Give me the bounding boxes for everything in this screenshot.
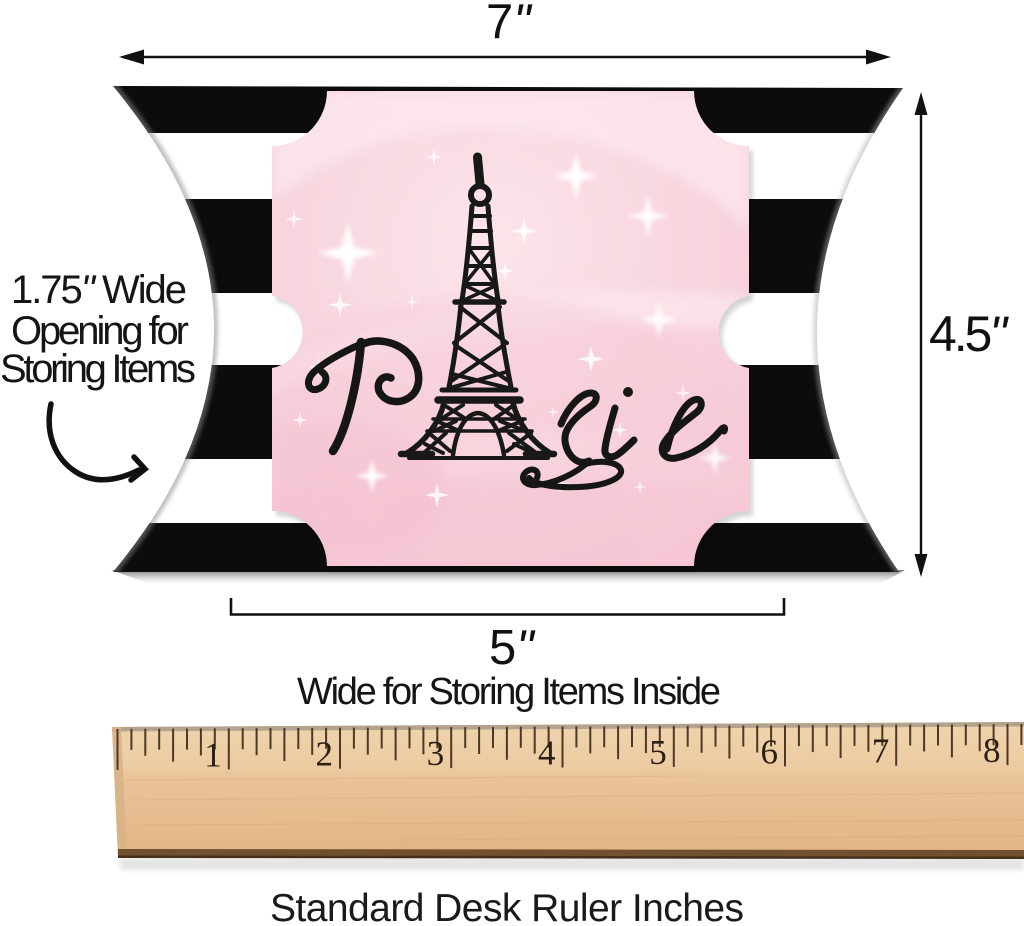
- svg-text:7": 7": [486, 0, 533, 49]
- svg-text:3: 3: [427, 734, 445, 773]
- svg-text:5": 5": [489, 621, 536, 675]
- svg-text:6: 6: [761, 732, 779, 771]
- svg-text:4.5": 4.5": [929, 306, 1009, 362]
- svg-text:5: 5: [649, 733, 667, 772]
- svg-text:Wide for Storing Items Inside: Wide for Storing Items Inside: [297, 671, 721, 713]
- svg-text:Storing Items: Storing Items: [0, 347, 196, 391]
- svg-text:1.75" Wide: 1.75" Wide: [11, 268, 187, 312]
- svg-text:Standard Desk Ruler Inches: Standard Desk Ruler Inches: [270, 887, 744, 926]
- svg-text:7: 7: [872, 732, 890, 771]
- svg-text:2: 2: [316, 735, 334, 774]
- svg-text:8: 8: [983, 731, 1001, 770]
- svg-text:1: 1: [204, 735, 222, 774]
- svg-text:4: 4: [538, 734, 556, 773]
